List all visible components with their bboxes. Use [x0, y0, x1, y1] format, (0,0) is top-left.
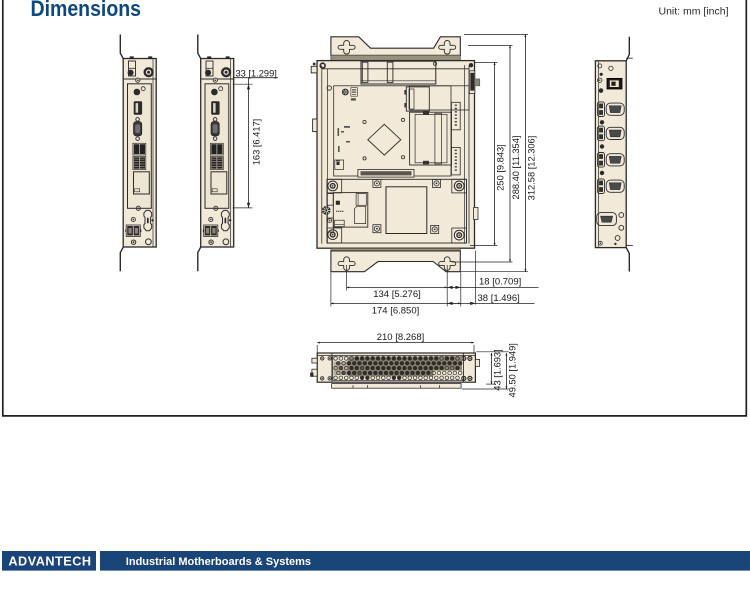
svg-text:Unit: mm [inch]: Unit: mm [inch] [658, 6, 728, 18]
svg-text:163 [6.417]: 163 [6.417] [252, 119, 262, 166]
svg-text:43 [1.693]: 43 [1.693] [492, 349, 502, 390]
svg-text:174 [6.850]: 174 [6.850] [372, 305, 420, 316]
svg-text:312.58 [12.306]: 312.58 [12.306] [527, 136, 537, 201]
svg-text:288.40 [11.354]: 288.40 [11.354] [511, 136, 521, 200]
svg-text:49.50 [1.949]: 49.50 [1.949] [508, 343, 518, 397]
svg-text:134 [5.276]: 134 [5.276] [373, 289, 421, 300]
svg-text:210 [8.268]: 210 [8.268] [377, 332, 425, 343]
svg-text:38 [1.496]: 38 [1.496] [478, 293, 520, 304]
svg-text:Dimensions: Dimensions [31, 0, 142, 21]
svg-text:250 [9.843]: 250 [9.843] [496, 144, 506, 191]
svg-text:ADVANTECH: ADVANTECH [8, 554, 91, 568]
svg-text:Industrial Motherboards & Syst: Industrial Motherboards & Systems [126, 556, 311, 568]
svg-text:33 [1.299]: 33 [1.299] [236, 68, 277, 78]
svg-text:18 [0.709]: 18 [0.709] [479, 277, 521, 288]
